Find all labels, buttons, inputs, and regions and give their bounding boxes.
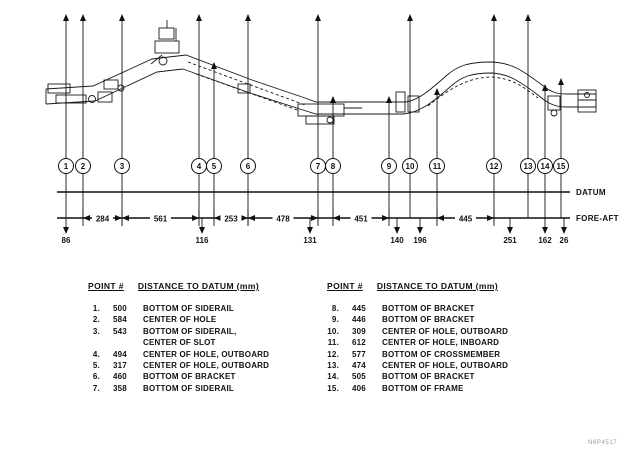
- distance-header: DISTANCE TO DATUM (mm): [377, 281, 498, 291]
- point-number: 2.: [88, 315, 100, 326]
- fore-aft-offset-26: 26: [560, 218, 569, 245]
- table-row: 13.474CENTER OF HOLE, OUTBOARD: [327, 361, 557, 372]
- point-number: 15.: [327, 384, 339, 395]
- distance-value: 543: [113, 327, 137, 338]
- svg-text:116: 116: [196, 236, 209, 245]
- frame-drawing-dashed-lines: [188, 62, 538, 111]
- point-marker-1: 1: [59, 14, 74, 218]
- point-number: 6.: [88, 372, 100, 383]
- svg-text:15: 15: [557, 162, 566, 171]
- table-row: 12.577BOTTOM OF CROSSMEMBER: [327, 350, 557, 361]
- distance-value: 446: [352, 315, 376, 326]
- distance-value: 577: [352, 350, 376, 361]
- point-marker-13: 13: [521, 14, 536, 218]
- point-description: CENTER OF HOLE, OUTBOARD: [143, 350, 269, 361]
- svg-text:478: 478: [276, 215, 290, 224]
- point-marker-5: 5: [207, 62, 222, 218]
- table-row: 4.494CENTER OF HOLE, OUTBOARD: [88, 350, 318, 361]
- table-row: 2.584CENTER OF HOLE: [88, 315, 318, 326]
- table-row: 8.445BOTTOM OF BRACKET: [327, 304, 557, 315]
- svg-text:12: 12: [490, 162, 499, 171]
- point-description: CENTER OF HOLE, INBOARD: [382, 338, 499, 349]
- point-number: 12.: [327, 350, 339, 361]
- fore-aft-offset-251: 251: [503, 218, 517, 245]
- distance-value: [113, 338, 137, 349]
- svg-text:1: 1: [64, 162, 69, 171]
- svg-text:561: 561: [154, 215, 168, 224]
- svg-text:5: 5: [212, 162, 217, 171]
- table-row: 11.612CENTER OF HOLE, INBOARD: [327, 338, 557, 349]
- svg-text:6: 6: [246, 162, 251, 171]
- distance-value: 317: [113, 361, 137, 372]
- distance-value: 494: [113, 350, 137, 361]
- point-marker-14: 14: [538, 84, 553, 218]
- table-rows: 1.500BOTTOM OF SIDERAIL2.584CENTER OF HO…: [88, 304, 318, 395]
- svg-text:451: 451: [354, 215, 368, 224]
- point-description: BOTTOM OF BRACKET: [382, 315, 475, 326]
- table-row: 7.358BOTTOM OF SIDERAIL: [88, 384, 318, 395]
- svg-text:445: 445: [459, 215, 473, 224]
- distance-value: 505: [352, 372, 376, 383]
- point-marker-15: 15: [554, 78, 569, 218]
- point-number: 4.: [88, 350, 100, 361]
- point-number: 5.: [88, 361, 100, 372]
- svg-text:26: 26: [560, 236, 569, 245]
- fore-aft-offset-196: 196: [413, 218, 427, 245]
- point-marker-10: 10: [403, 14, 418, 218]
- distance-header: DISTANCE TO DATUM (mm): [138, 281, 259, 291]
- distance-value: 309: [352, 327, 376, 338]
- frame-drawing: [46, 20, 596, 124]
- fore-aft-offset-131: 131: [303, 218, 317, 245]
- point-description: CENTER OF HOLE: [143, 315, 216, 326]
- svg-text:11: 11: [433, 162, 442, 171]
- points-table-left: POINT #DISTANCE TO DATUM (mm) 1.500BOTTO…: [88, 281, 318, 395]
- svg-text:3: 3: [120, 162, 125, 171]
- distance-value: 358: [113, 384, 137, 395]
- point-number: 3.: [88, 327, 100, 338]
- point-description: BOTTOM OF SIDERAIL: [143, 384, 234, 395]
- point-number: 8.: [327, 304, 339, 315]
- svg-text:86: 86: [62, 236, 71, 245]
- dimension-284: 284: [83, 210, 122, 226]
- table-row: 15.406BOTTOM OF FRAME: [327, 384, 557, 395]
- frame-dimensions-diagram: 1234567891011121314152845612534784514458…: [0, 0, 640, 455]
- point-description: BOTTOM OF SIDERAIL,: [143, 327, 236, 338]
- svg-text:140: 140: [390, 236, 404, 245]
- table-row: 5.317CENTER OF HOLE, OUTBOARD: [88, 361, 318, 372]
- point-marker-12: 12: [487, 14, 502, 218]
- point-description: BOTTOM OF SIDERAIL: [143, 304, 234, 315]
- table-row: 14.505BOTTOM OF BRACKET: [327, 372, 557, 383]
- table-header: POINT #DISTANCE TO DATUM (mm): [88, 281, 318, 291]
- fore-aft-offset-86: 86: [62, 218, 71, 245]
- point-description: CENTER OF HOLE, OUTBOARD: [382, 361, 508, 372]
- point-description: CENTER OF HOLE, OUTBOARD: [143, 361, 269, 372]
- point-marker-4: 4: [192, 14, 207, 218]
- figure-code: N6P4517: [588, 440, 617, 446]
- point-description: CENTER OF SLOT: [143, 338, 216, 349]
- distance-value: 612: [352, 338, 376, 349]
- svg-text:7: 7: [316, 162, 321, 171]
- svg-text:14: 14: [541, 162, 550, 171]
- svg-text:251: 251: [503, 236, 517, 245]
- svg-text:13: 13: [524, 162, 533, 171]
- distance-value: 500: [113, 304, 137, 315]
- table-row: 1.500BOTTOM OF SIDERAIL: [88, 304, 318, 315]
- point-marker-6: 6: [241, 14, 256, 218]
- point-description: BOTTOM OF BRACKET: [382, 304, 475, 315]
- dimension-253: 253: [214, 210, 248, 226]
- svg-text:253: 253: [224, 215, 238, 224]
- svg-text:8: 8: [331, 162, 336, 171]
- point-number: 1.: [88, 304, 100, 315]
- point-number-header: POINT #: [327, 281, 363, 291]
- point-description: BOTTOM OF CROSSMEMBER: [382, 350, 500, 361]
- table-header: POINT #DISTANCE TO DATUM (mm): [327, 281, 557, 291]
- point-description: BOTTOM OF BRACKET: [382, 372, 475, 383]
- point-number: 10.: [327, 327, 339, 338]
- table-row: 3.543BOTTOM OF SIDERAIL,: [88, 327, 318, 338]
- point-number: 14.: [327, 372, 339, 383]
- point-marker-2: 2: [76, 14, 91, 218]
- point-number: 13.: [327, 361, 339, 372]
- point-number: 7.: [88, 384, 100, 395]
- fore-aft-offset-140: 140: [390, 218, 404, 245]
- svg-text:4: 4: [197, 162, 202, 171]
- point-number: 9.: [327, 315, 339, 326]
- distance-value: 474: [352, 361, 376, 372]
- svg-text:284: 284: [96, 215, 110, 224]
- distance-value: 406: [352, 384, 376, 395]
- point-number: [88, 338, 100, 349]
- point-description: BOTTOM OF FRAME: [382, 384, 464, 395]
- svg-text:10: 10: [406, 162, 415, 171]
- point-description: CENTER OF HOLE, OUTBOARD: [382, 327, 508, 338]
- datum-label: DATUM: [576, 188, 606, 197]
- point-marker-3: 3: [115, 14, 130, 218]
- svg-text:2: 2: [81, 162, 86, 171]
- table-rows: 8.445BOTTOM OF BRACKET9.446BOTTOM OF BRA…: [327, 304, 557, 395]
- distance-value: 460: [113, 372, 137, 383]
- point-marker-11: 11: [430, 88, 445, 218]
- fore-aft-offset-116: 116: [196, 218, 209, 245]
- points-table-right: POINT #DISTANCE TO DATUM (mm) 8.445BOTTO…: [327, 281, 557, 395]
- table-row: 10.309CENTER OF HOLE, OUTBOARD: [327, 327, 557, 338]
- point-number-header: POINT #: [88, 281, 124, 291]
- svg-text:9: 9: [387, 162, 392, 171]
- point-number: 11.: [327, 338, 339, 349]
- svg-text:196: 196: [413, 236, 427, 245]
- point-description: BOTTOM OF BRACKET: [143, 372, 236, 383]
- table-row: 9.446BOTTOM OF BRACKET: [327, 315, 557, 326]
- fore-aft-label: FORE-AFT: [576, 214, 619, 223]
- distance-value: 584: [113, 315, 137, 326]
- table-row: CENTER OF SLOT: [88, 338, 318, 349]
- svg-text:162: 162: [538, 236, 552, 245]
- svg-text:131: 131: [303, 236, 317, 245]
- fore-aft-offset-162: 162: [538, 218, 552, 245]
- table-row: 6.460BOTTOM OF BRACKET: [88, 372, 318, 383]
- distance-value: 445: [352, 304, 376, 315]
